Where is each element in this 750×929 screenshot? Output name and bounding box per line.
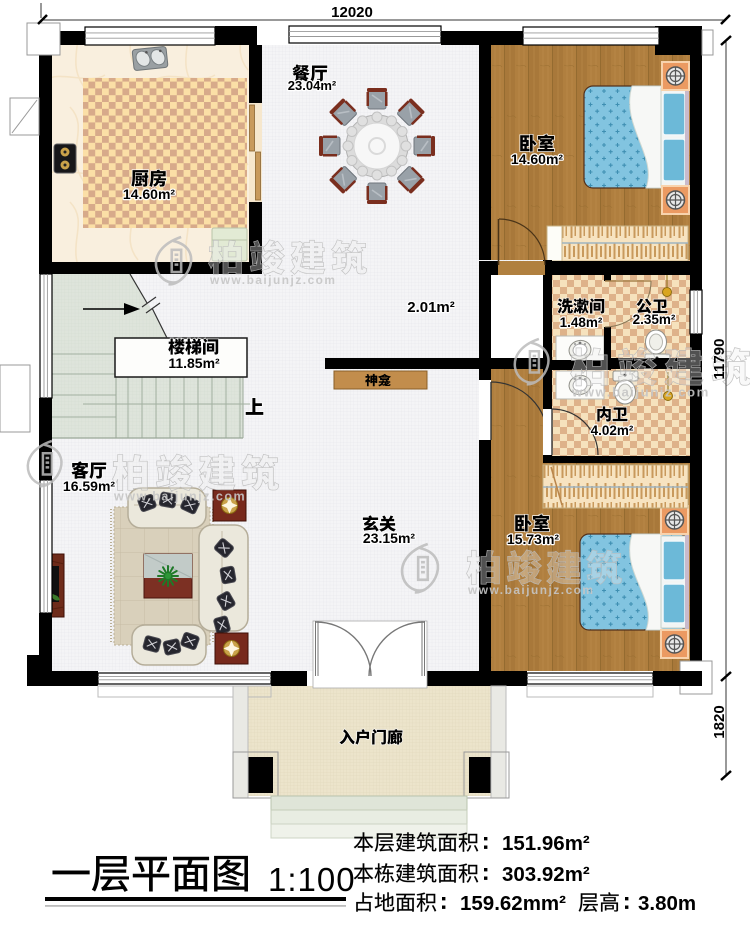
svg-text:11790: 11790: [711, 339, 728, 380]
svg-text:1.48m²: 1.48m²: [560, 315, 603, 330]
svg-text:4.02m²: 4.02m²: [591, 423, 634, 438]
svg-text:159.62mm²: 159.62mm²: [460, 892, 566, 915]
svg-text:303.92m²: 303.92m²: [502, 863, 590, 886]
svg-text:www.baijunjz.com: www.baijunjz.com: [571, 384, 710, 399]
svg-text:14.60m²: 14.60m²: [123, 186, 175, 202]
svg-text:11.85m²: 11.85m²: [168, 355, 220, 371]
svg-text:15.73m²: 15.73m²: [507, 531, 559, 547]
svg-text:14.60m²: 14.60m²: [511, 151, 563, 167]
svg-text:www.baijunjz.com: www.baijunjz.com: [467, 583, 595, 597]
svg-text:23.15m²: 23.15m²: [363, 530, 415, 546]
svg-text:3.80m: 3.80m: [638, 892, 696, 915]
svg-text:www.baijunjz.com: www.baijunjz.com: [113, 490, 246, 504]
svg-text:23.04m²: 23.04m²: [288, 78, 337, 93]
svg-text:1820: 1820: [711, 705, 728, 738]
svg-text:2.01m²: 2.01m²: [407, 299, 455, 316]
svg-text:2.35m²: 2.35m²: [633, 312, 676, 327]
svg-text:www.baijunjz.com: www.baijunjz.com: [209, 273, 337, 287]
svg-text:12020: 12020: [331, 4, 373, 21]
svg-text:1:100: 1:100: [268, 861, 356, 898]
svg-text:151.96m²: 151.96m²: [502, 832, 590, 855]
svg-text:16.59m²: 16.59m²: [63, 478, 115, 494]
